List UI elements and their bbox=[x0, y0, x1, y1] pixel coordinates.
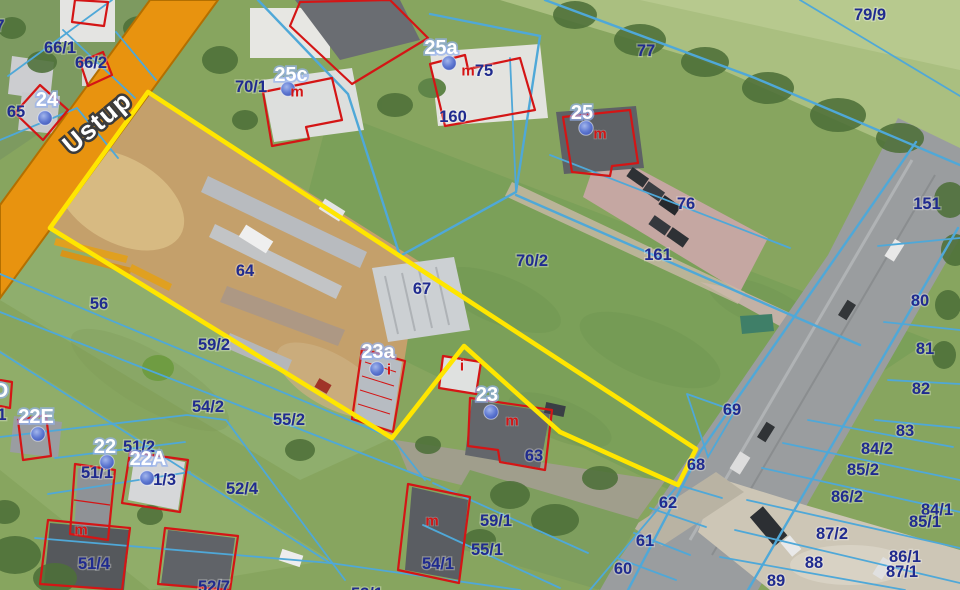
address-label-23: 23 bbox=[476, 384, 498, 406]
parcel-label-62: 62 bbox=[659, 494, 677, 512]
parcel-label-80: 80 bbox=[911, 292, 929, 310]
address-label-22E: 22E bbox=[18, 406, 54, 428]
parcel-label-54-2: 54/2 bbox=[192, 398, 224, 416]
parcel-label-63: 63 bbox=[525, 447, 543, 465]
parcel-label-87-1: 87/1 bbox=[886, 563, 918, 581]
building-function-mark-m: m bbox=[461, 63, 474, 80]
address-label-23a: 23a bbox=[361, 341, 395, 363]
parcel-label-160: 160 bbox=[439, 108, 467, 126]
parcel-label-75: 75 bbox=[475, 62, 493, 80]
building-function-mark-m: m bbox=[425, 513, 438, 530]
parcel-label-53-1: 53/1 bbox=[351, 585, 383, 590]
parcel-label-87-2: 87/2 bbox=[816, 525, 848, 543]
building-function-mark-m: m bbox=[74, 522, 87, 539]
parcel-label-66-1: 66/1 bbox=[44, 39, 76, 57]
parcel-label-52-7: 52/7 bbox=[198, 578, 230, 590]
parcel-label-82: 82 bbox=[912, 380, 930, 398]
parcel-label-77: 77 bbox=[637, 42, 655, 60]
parcel-label-51-4: 51/4 bbox=[78, 555, 111, 573]
parcel-label-85-1: 85/1 bbox=[909, 513, 941, 531]
parcel-label-66-2: 66/2 bbox=[75, 54, 107, 72]
parcel-label-161: 161 bbox=[644, 246, 672, 264]
parcel-label-79-9: 79/9 bbox=[854, 6, 886, 24]
building-function-mark-i: i bbox=[460, 358, 464, 375]
parcel-label-67: 67 bbox=[413, 280, 431, 298]
address-point-dot-23a bbox=[370, 362, 384, 376]
parcel-label-61: 61 bbox=[636, 532, 654, 550]
parcel-label-54-1: 54/1 bbox=[422, 555, 454, 573]
parcel-label-89: 89 bbox=[767, 572, 785, 590]
parcel-label-70-1: 70/1 bbox=[235, 78, 267, 96]
parcel-label-81: 81 bbox=[916, 340, 934, 358]
address-point-dot-22E bbox=[31, 427, 45, 441]
parcel-label-68: 68 bbox=[687, 456, 705, 474]
parcel-label-85-2: 85/2 bbox=[847, 461, 879, 479]
address-label-25a: 25a bbox=[424, 37, 458, 59]
building-function-mark-m: m bbox=[505, 413, 518, 430]
address-point-dot-22A bbox=[140, 471, 154, 485]
address-label-24: 24 bbox=[36, 89, 59, 111]
parcel-label-70-2: 70/2 bbox=[516, 252, 548, 270]
parcel-label-83: 83 bbox=[896, 422, 914, 440]
address-label-25: 25 bbox=[571, 102, 593, 124]
parcel-label-65: 65 bbox=[7, 103, 25, 121]
parcel-label-1: 1 bbox=[0, 406, 7, 424]
address-point-dot-24 bbox=[38, 111, 52, 125]
parcel-label-84-2: 84/2 bbox=[861, 440, 893, 458]
building-function-mark-m: m bbox=[290, 84, 303, 101]
address-point-dot-23 bbox=[484, 405, 498, 419]
address-label-22: 22 bbox=[94, 436, 116, 458]
parcel-label-7: 7 bbox=[0, 17, 5, 35]
parcel-label-56: 56 bbox=[90, 295, 108, 313]
parcel-label-52-4: 52/4 bbox=[226, 480, 259, 498]
parcel-label-55-1: 55/1 bbox=[471, 541, 503, 559]
building-function-mark-i: i bbox=[387, 362, 391, 379]
parcel-label-59-2: 59/2 bbox=[198, 336, 230, 354]
parcel-label-64: 64 bbox=[236, 262, 255, 280]
parcel-label-59-1: 59/1 bbox=[480, 512, 512, 530]
map-viewport[interactable]: 766/166/26570/1751607779/97615116170/264… bbox=[0, 0, 960, 590]
address-label-D: D bbox=[0, 380, 8, 402]
parcel-label-76: 76 bbox=[677, 195, 695, 213]
building-function-mark-m: m bbox=[593, 126, 606, 143]
parcel-label-69: 69 bbox=[723, 401, 741, 419]
map-canvas[interactable]: 766/166/26570/1751607779/97615116170/264… bbox=[0, 0, 960, 590]
parcel-label-55-2: 55/2 bbox=[273, 411, 305, 429]
parcel-label-60: 60 bbox=[614, 560, 632, 578]
parcel-label-88: 88 bbox=[805, 554, 823, 572]
parcel-label-86-2: 86/2 bbox=[831, 488, 863, 506]
parcel-label-151: 151 bbox=[913, 195, 941, 213]
address-label-22A: 22A bbox=[130, 448, 167, 470]
